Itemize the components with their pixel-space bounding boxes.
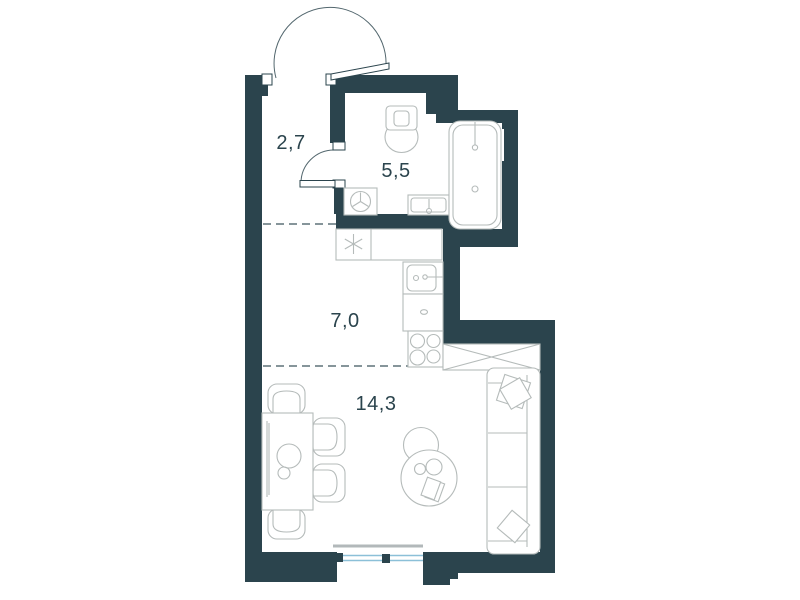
left-wall [245,75,262,582]
sofa-icon [487,368,540,554]
window-mullion-center [382,554,390,563]
bathroom-door [300,142,345,188]
coffee-tables-icon [401,428,457,507]
wardrobe-icon [443,344,540,370]
bathroom-left-wall-lower [334,188,345,214]
window-mullion-left [336,553,343,562]
dining-table-icon [262,413,313,510]
entrance-door [262,7,389,85]
chair-right-2 [313,464,345,502]
bath-niche-right-wall [502,123,518,247]
bathroom-top-wall [330,75,458,93]
entrance-door-jamb-left [262,74,272,85]
bathroom-door-leaf [300,181,335,188]
living-room-furniture [262,344,540,554]
kitchen-sink-icon [403,262,443,294]
floorplan-canvas: 2,7 5,5 7,0 14,3 [0,0,800,600]
chair-top [268,384,305,414]
kitchen-cabinet [403,294,443,331]
chair-bottom [268,509,305,539]
bottom-right-wall [423,552,555,585]
washing-machine-icon [344,188,377,215]
dining-set [262,384,345,539]
kitchen-right-wall [443,229,460,333]
kitchen-fixtures [336,229,443,367]
bathtub-icon [449,121,501,229]
apartment-floorplan: 2,7 5,5 7,0 14,3 [0,0,800,600]
bathroom-sink-icon [408,195,449,215]
living-top-wall [443,320,555,345]
right-wall [540,333,555,573]
room-label-kitchen: 7,0 [330,310,359,332]
bathroom-door-jamb-top [333,142,345,150]
window [333,546,423,563]
room-label-bathroom: 5,5 [381,160,410,182]
stove-icon [408,331,443,367]
kitchen-counter [336,229,442,260]
room-label-hallway: 2,7 [276,132,305,154]
bottom-left-wall [245,552,337,582]
toilet-icon [385,106,418,153]
bathroom-left-wall-upper [330,93,345,143]
bathroom-fixtures [344,106,501,229]
room-label-living-room: 14,3 [356,393,397,415]
bathroom-bottom-wall [336,214,460,229]
bathroom-door-swing-arc [301,150,334,183]
room-labels: 2,7 5,5 7,0 14,3 [276,132,410,415]
chair-right-1 [313,418,345,456]
